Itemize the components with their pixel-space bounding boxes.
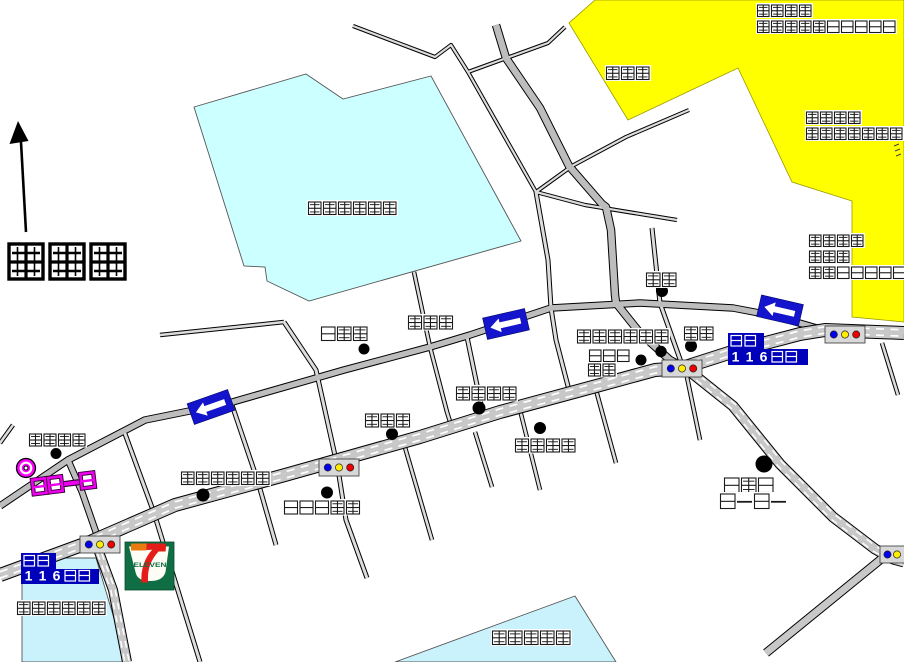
svg-text:1: 1 bbox=[746, 349, 754, 365]
svg-text:6: 6 bbox=[53, 568, 61, 584]
svg-text:6: 6 bbox=[760, 349, 768, 365]
svg-text:ELEVEN: ELEVEN bbox=[134, 562, 167, 569]
svg-text:1: 1 bbox=[732, 349, 740, 365]
svg-text:1: 1 bbox=[39, 568, 47, 584]
svg-text:1: 1 bbox=[25, 568, 33, 584]
